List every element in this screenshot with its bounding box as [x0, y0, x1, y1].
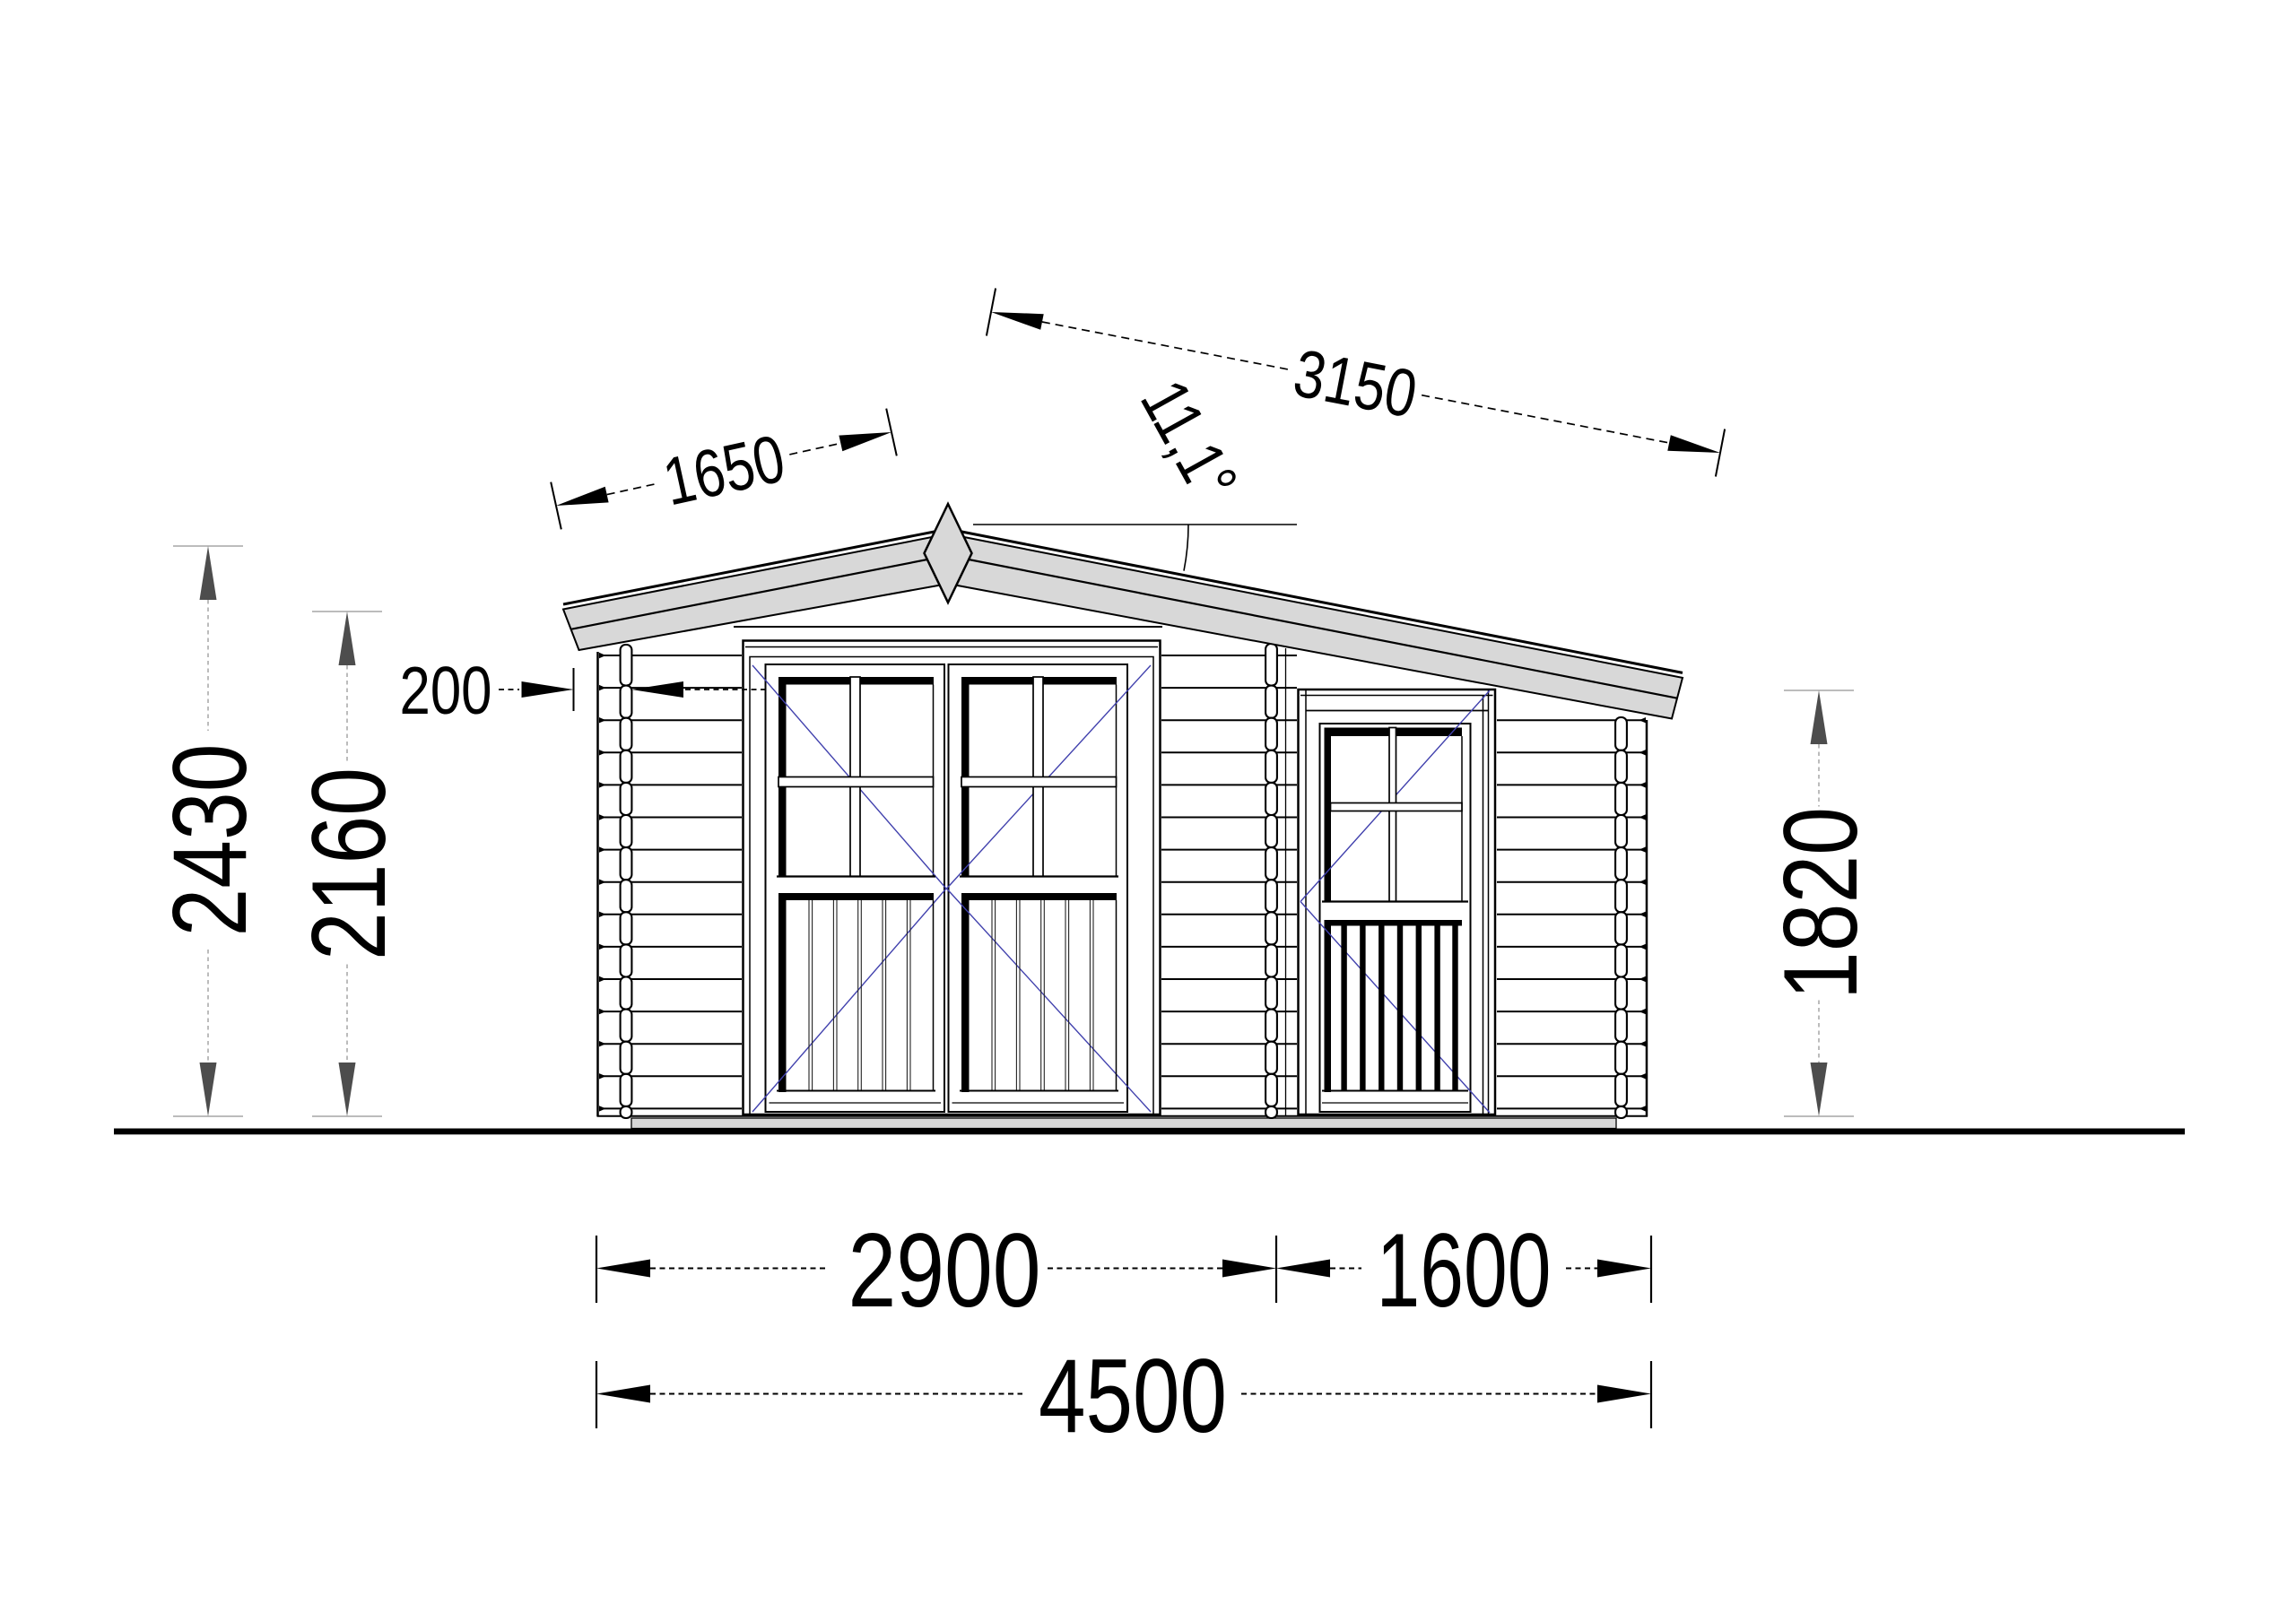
svg-text:1820: 1820 — [1761, 807, 1879, 1000]
svg-text:200: 200 — [400, 653, 492, 728]
svg-text:2160: 2160 — [290, 768, 407, 960]
svg-text:4500: 4500 — [1039, 1337, 1227, 1454]
svg-text:2900: 2900 — [848, 1211, 1041, 1329]
svg-text:1600: 1600 — [1377, 1211, 1552, 1329]
svg-text:2430: 2430 — [151, 744, 268, 937]
